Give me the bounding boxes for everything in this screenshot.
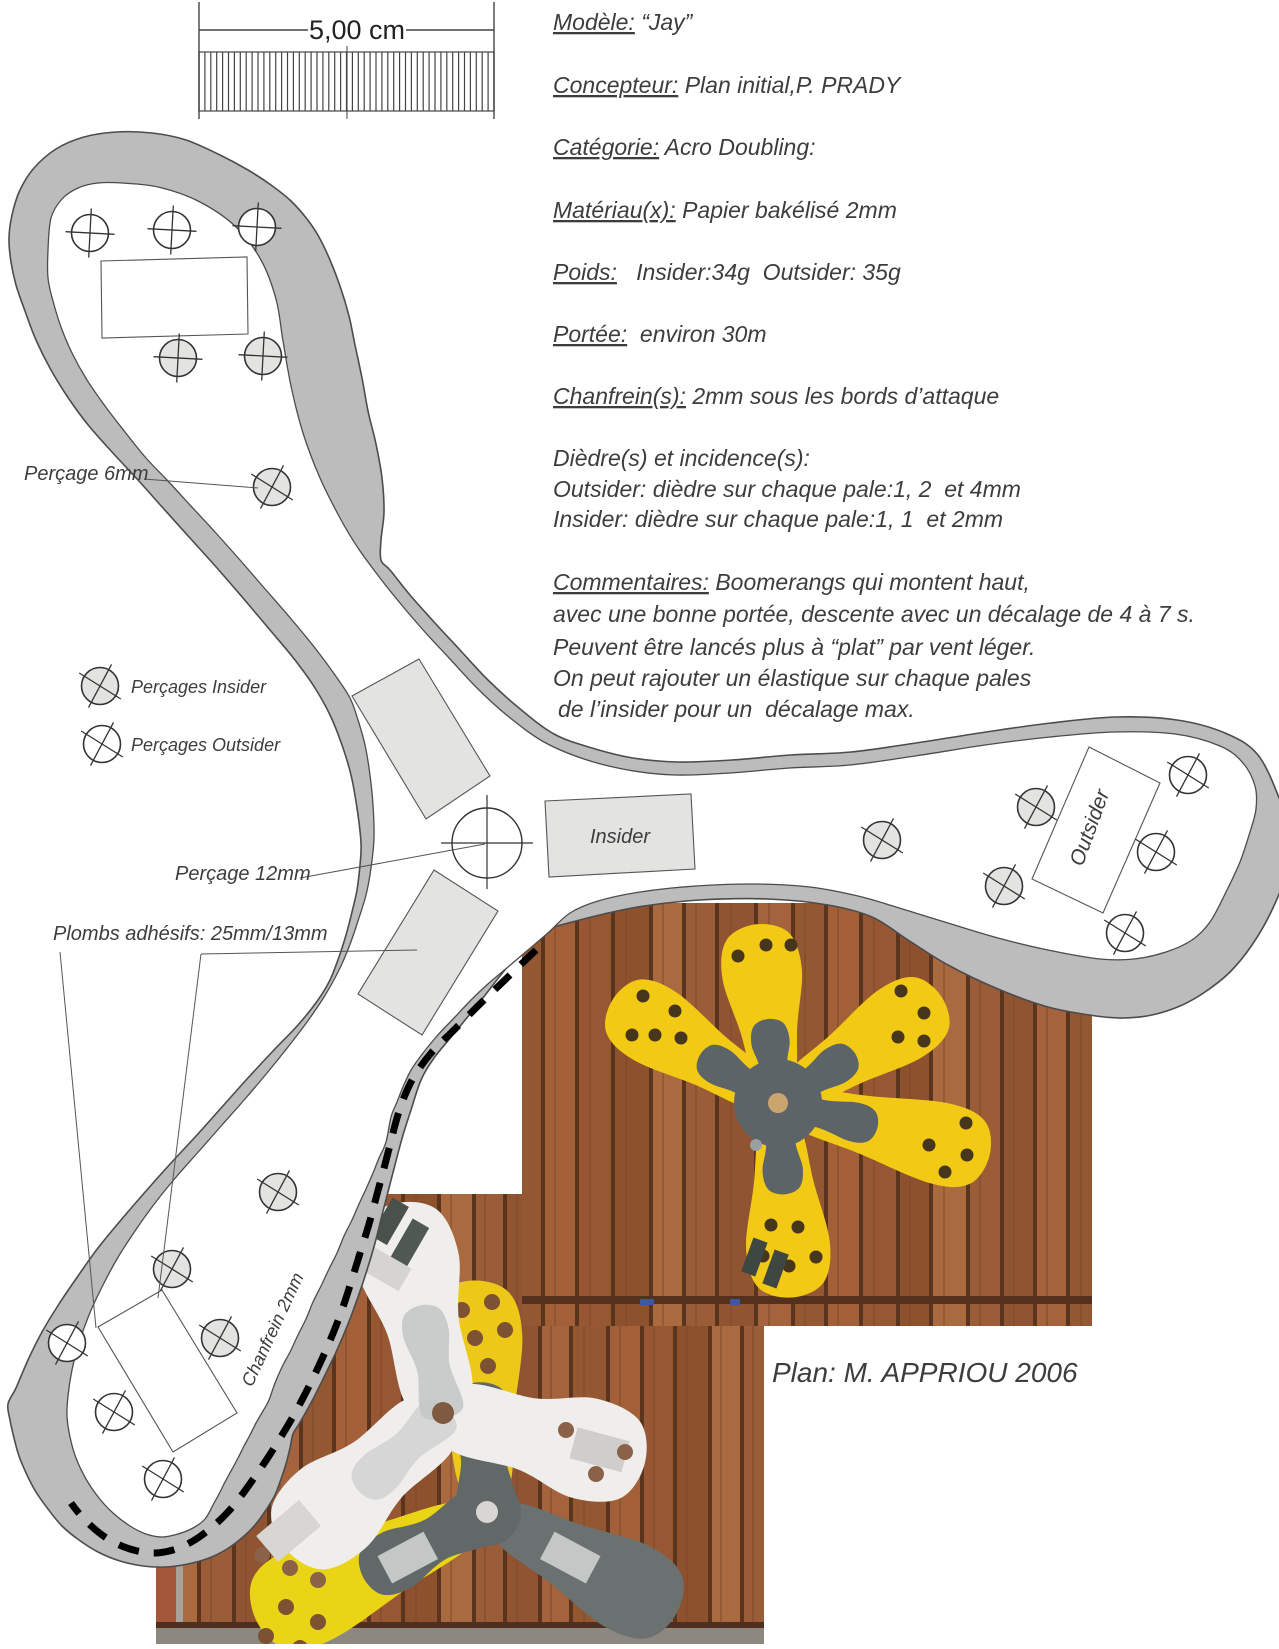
svg-text:Peuvent être lancés plus à “pl: Peuvent être lancés plus à “plat” par ve… xyxy=(553,634,1035,660)
svg-text:Catégorie: Acro Doubling:: Catégorie: Acro Doubling: xyxy=(553,134,816,160)
svg-text:Chanfrein(s): 2mm sous les bor: Chanfrein(s): 2mm sous les bords d’attaq… xyxy=(553,383,999,409)
svg-text:Perçages Insider: Perçages Insider xyxy=(131,677,267,697)
svg-text:de l’insider pour un décalage: de l’insider pour un décalage max. xyxy=(558,696,915,722)
svg-text:Perçage 6mm: Perçage 6mm xyxy=(24,463,149,485)
svg-text:Portée: environ 30m: Portée: environ 30m xyxy=(553,321,767,347)
svg-text:Concepteur: Plan initial,P. PR: Concepteur: Plan initial,P. PRADY xyxy=(553,72,902,98)
svg-text:Insider: dièdre sur chaque pal: Insider: dièdre sur chaque pale:1, 1 et … xyxy=(553,506,1003,532)
svg-text:Perçages Outsider: Perçages Outsider xyxy=(131,735,281,755)
svg-text:On peut rajouter un élastique: On peut rajouter un élastique sur chaque… xyxy=(553,665,1032,691)
svg-text:Modèle: “Jay”: Modèle: “Jay” xyxy=(553,9,694,35)
svg-text:avec une bonne portée, descent: avec une bonne portée, descente avec un … xyxy=(553,601,1195,627)
svg-text:Insider: Insider xyxy=(590,826,651,848)
svg-text:5,00 cm: 5,00 cm xyxy=(309,15,405,45)
svg-text:Poids: Insider:34g Outsider: Poids: Insider:34g Outsider: 35g xyxy=(553,259,901,285)
svg-text:Matériau(x): Papier bakélisé 2: Matériau(x): Papier bakélisé 2mm xyxy=(553,197,897,223)
svg-text:Plombs adhésifs: 25mm/13mm: Plombs adhésifs: 25mm/13mm xyxy=(53,923,328,945)
svg-text:Perçage 12mm: Perçage 12mm xyxy=(175,863,311,885)
svg-text:Outsider: dièdre sur chaque pa: Outsider: dièdre sur chaque pale:1, 2 et… xyxy=(553,476,1021,502)
svg-text:Commentaires: Boomerangs qui m: Commentaires: Boomerangs qui montent hau… xyxy=(553,569,1030,595)
svg-text:Dièdre(s) et incidence(s):: Dièdre(s) et incidence(s): xyxy=(553,445,810,471)
svg-text:Plan: M. APPRIOU 2006: Plan: M. APPRIOU 2006 xyxy=(772,1357,1078,1388)
